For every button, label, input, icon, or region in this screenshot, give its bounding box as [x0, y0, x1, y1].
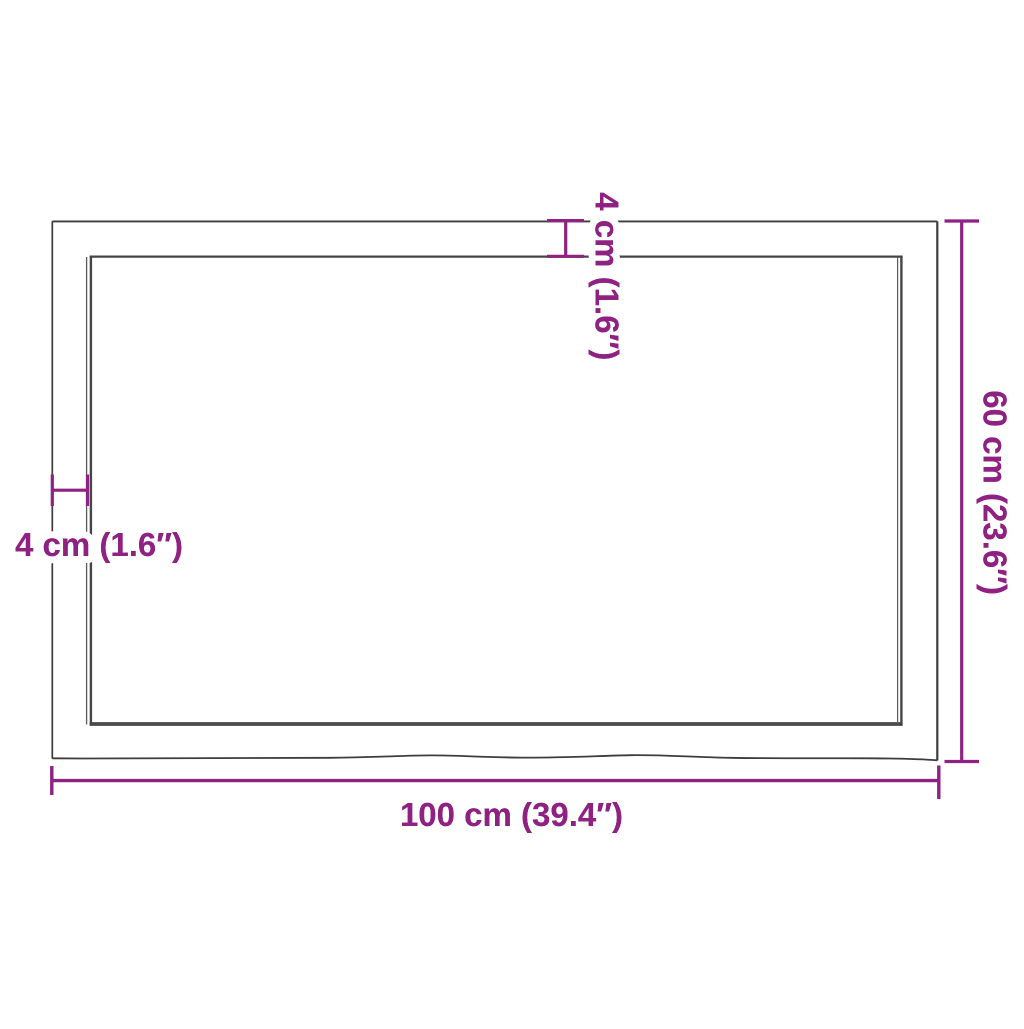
svg-text:4 cm (1.6″): 4 cm (1.6″) — [589, 192, 626, 360]
svg-text:100 cm (39.4″): 100 cm (39.4″) — [400, 796, 623, 833]
svg-text:4 cm (1.6″): 4 cm (1.6″) — [15, 526, 183, 563]
svg-text:60 cm (23.6″): 60 cm (23.6″) — [977, 390, 1014, 595]
